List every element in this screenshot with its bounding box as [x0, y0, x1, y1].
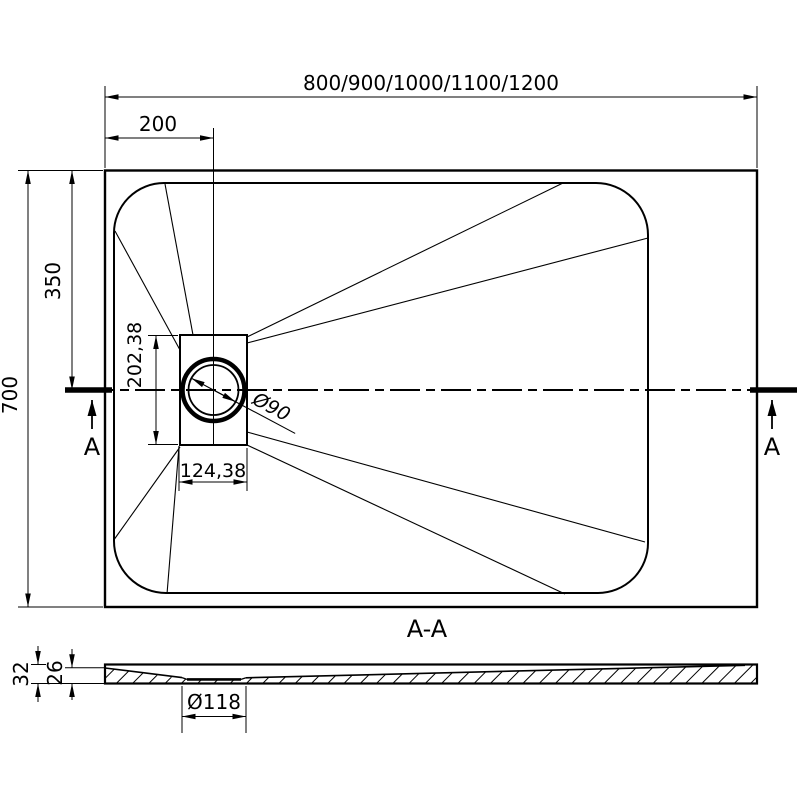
drain-offset-label: 200 — [139, 112, 177, 136]
tray-outer-edge — [105, 171, 757, 608]
inner-depth-label: 26 — [43, 660, 67, 685]
cut-label-right: A — [764, 433, 781, 461]
cut-label-left: A — [84, 433, 101, 461]
width-dimension: 800/900/1000/1100/1200 — [105, 71, 757, 168]
section-view: A-A 32 26 Ø118 — [9, 615, 757, 733]
drain-assembly: Ø90 — [180, 128, 306, 445]
drain-recess-label: Ø118 — [187, 690, 241, 714]
drain-box-height-dimension: 202,38 — [124, 322, 178, 445]
drain-box-height-label: 202,38 — [124, 322, 146, 388]
overall-height-label: 32 — [9, 661, 33, 686]
slope-crease-lines — [115, 183, 649, 594]
depth-dimension-label: 700 — [0, 376, 22, 414]
drain-center-label: 350 — [41, 262, 65, 300]
shower-tray-technical-drawing: Ø90 A A 800/900/1000/1100/1200 200 — [0, 0, 800, 800]
drawing-canvas: Ø90 A A 800/900/1000/1100/1200 200 — [0, 0, 800, 800]
section-title: A-A — [407, 615, 448, 643]
drain-center-dimension: 350 — [41, 171, 72, 391]
tray-inner-basin-edge — [114, 183, 648, 593]
inner-depth-dimension: 26 — [43, 649, 104, 700]
plan-view: Ø90 A A 800/900/1000/1100/1200 200 — [0, 71, 797, 607]
width-dimension-label: 800/900/1000/1100/1200 — [303, 71, 559, 95]
drain-recess-dimension: Ø118 — [182, 686, 246, 733]
section-cut-line: A A — [65, 390, 797, 461]
drain-box-width-label: 124,38 — [180, 460, 246, 482]
drain-box-width-dimension: 124,38 — [179, 448, 247, 491]
drain-offset-dimension: 200 — [105, 112, 214, 138]
